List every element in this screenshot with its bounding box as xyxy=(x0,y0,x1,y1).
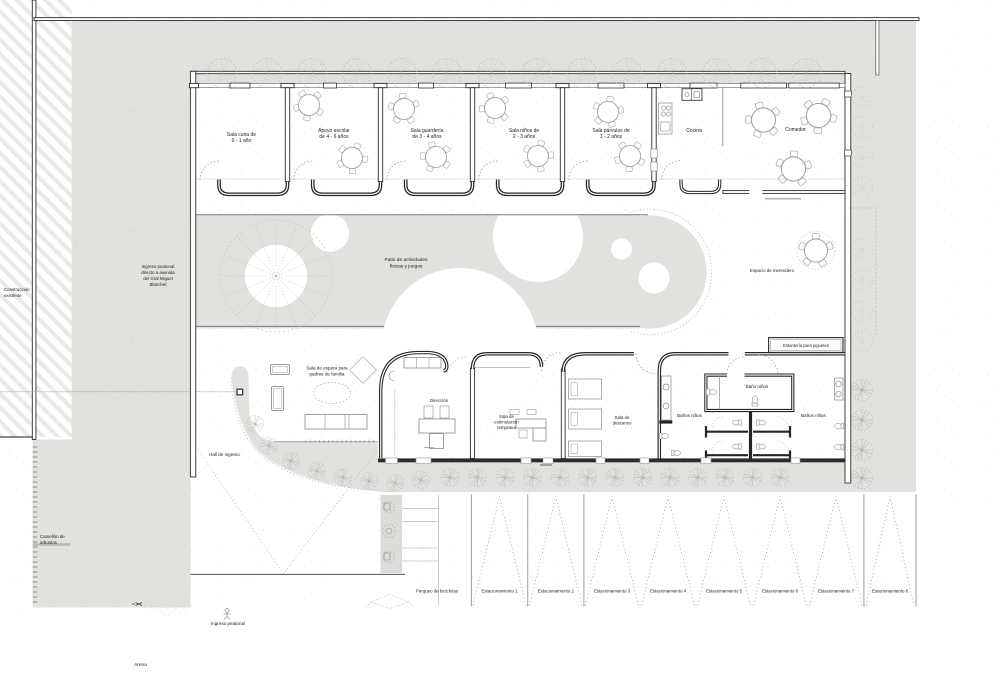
svg-text:Comedor: Comedor xyxy=(785,127,806,133)
svg-text:físicas y juegos: físicas y juegos xyxy=(390,264,423,270)
svg-text:Baño niños: Baño niños xyxy=(746,384,769,389)
svg-text:Construcción: Construcción xyxy=(4,287,30,292)
svg-text:descanso: descanso xyxy=(613,421,632,426)
svg-text:estimulación: estimulación xyxy=(494,420,519,425)
svg-text:arbustos: arbustos xyxy=(40,540,58,545)
svg-text:1 - 2 años: 1 - 2 años xyxy=(600,134,623,140)
svg-text:Sala de: Sala de xyxy=(499,414,514,419)
svg-text:Hall de ingreso: Hall de ingreso xyxy=(209,452,240,457)
svg-text:de 4 - 6 años: de 4 - 6 años xyxy=(319,134,349,140)
svg-text:Estacionamiento 4: Estacionamiento 4 xyxy=(650,589,687,594)
svg-text:Estantería para juguetes: Estantería para juguetes xyxy=(783,343,829,348)
svg-text:Estacionamiento 7: Estacionamiento 7 xyxy=(818,589,855,594)
svg-text:existente: existente xyxy=(4,293,22,298)
svg-text:Estacionamiento 6: Estacionamiento 6 xyxy=(762,589,799,594)
svg-text:Estacionamiento 3: Estacionamiento 3 xyxy=(594,589,631,594)
svg-text:Sala de: Sala de xyxy=(615,415,630,420)
svg-text:directo a avenida: directo a avenida xyxy=(141,270,175,275)
svg-text:2 - 3 años: 2 - 3 años xyxy=(513,134,536,140)
svg-text:temprana: temprana xyxy=(497,425,516,430)
svg-text:Parqueo de bicicletas: Parqueo de bicicletas xyxy=(416,589,459,594)
svg-text:Patio de actividades: Patio de actividades xyxy=(385,257,429,263)
svg-text:Estacionamiento 8: Estacionamiento 8 xyxy=(872,589,909,594)
svg-text:del Gral Miguel: del Gral Miguel xyxy=(143,276,173,281)
svg-text:Ingreso peatonal: Ingreso peatonal xyxy=(211,621,245,626)
svg-text:Arena: Arena xyxy=(134,662,147,668)
svg-text:Ingreso peatonal: Ingreso peatonal xyxy=(142,264,175,269)
svg-text:Camellón de: Camellón de xyxy=(40,534,65,539)
svg-text:Estacionamiento 5: Estacionamiento 5 xyxy=(706,589,743,594)
svg-text:Sala de espera para: Sala de espera para xyxy=(306,366,348,371)
svg-text:0 - 1 año: 0 - 1 año xyxy=(232,138,252,144)
svg-text:de 3 - 4 años: de 3 - 4 años xyxy=(412,134,442,140)
svg-text:Baños niños: Baños niños xyxy=(677,413,703,418)
svg-text:Estacionamiento 1: Estacionamiento 1 xyxy=(481,589,518,594)
svg-text:Estacionamiento 2: Estacionamiento 2 xyxy=(538,589,575,594)
svg-text:Cocina: Cocina xyxy=(686,128,702,134)
svg-text:Dirección: Dirección xyxy=(430,398,449,403)
svg-text:Baños niñas: Baños niñas xyxy=(801,413,827,418)
svg-text:Blanchet: Blanchet xyxy=(149,282,167,287)
svg-text:padres de familia: padres de familia xyxy=(310,372,345,377)
svg-text:Espacio de merendero: Espacio de merendero xyxy=(750,268,795,273)
